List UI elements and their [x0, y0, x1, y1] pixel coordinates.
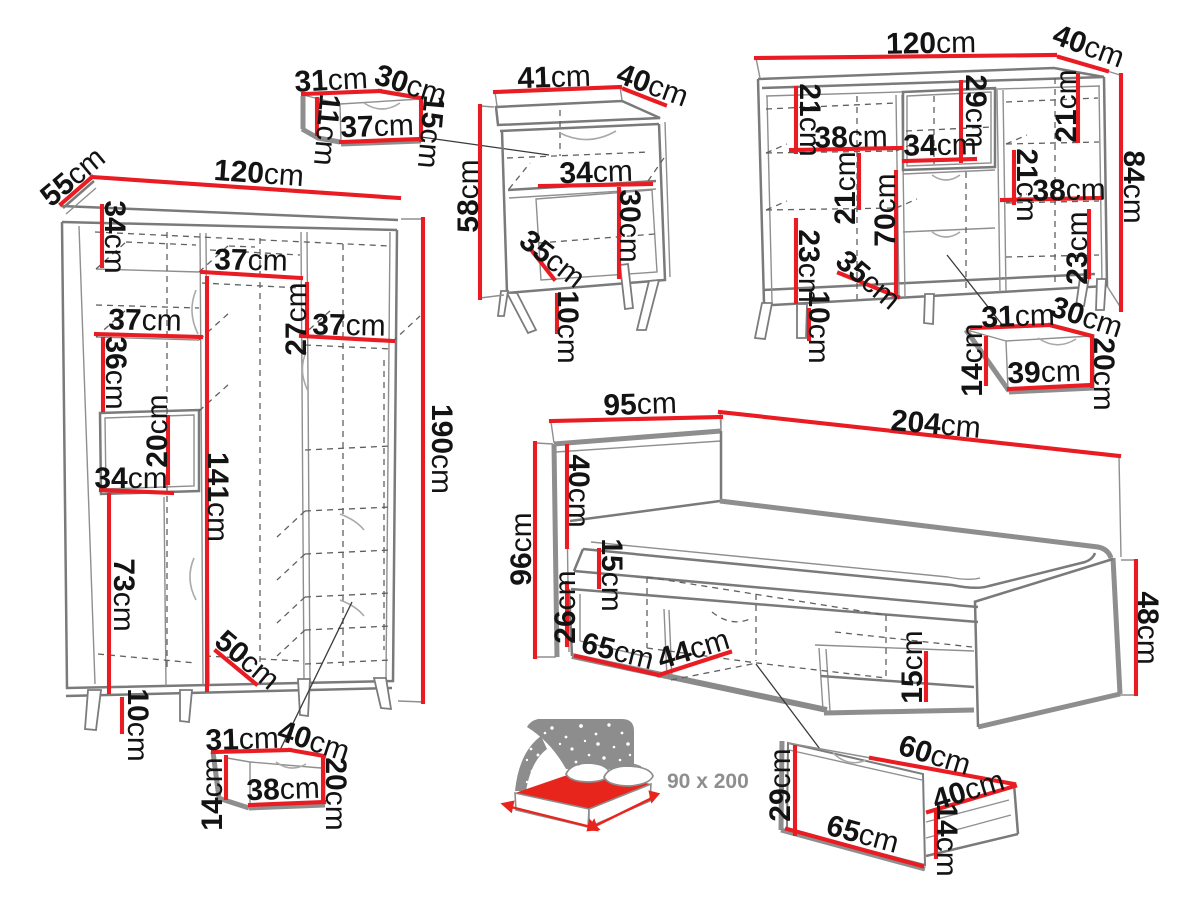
svg-text:37cm: 37cm: [108, 303, 182, 337]
svg-text:34cm: 34cm: [903, 128, 977, 162]
svg-text:34cm: 34cm: [94, 462, 167, 495]
svg-text:141cm: 141cm: [201, 452, 234, 542]
svg-text:37cm: 37cm: [214, 243, 288, 277]
svg-text:96cm: 96cm: [505, 512, 538, 585]
svg-text:37cm: 37cm: [340, 109, 414, 145]
svg-text:36cm: 36cm: [99, 336, 132, 409]
svg-text:90 x 200: 90 x 200: [667, 770, 749, 793]
svg-text:10cm: 10cm: [802, 290, 835, 363]
svg-text:31cm: 31cm: [205, 722, 279, 758]
svg-text:34cm: 34cm: [98, 200, 131, 273]
svg-text:14cm: 14cm: [956, 323, 989, 396]
svg-text:14cm: 14cm: [196, 757, 229, 830]
svg-text:38cm: 38cm: [246, 772, 320, 808]
svg-text:34cm: 34cm: [559, 155, 633, 191]
svg-text:73cm: 73cm: [107, 558, 140, 631]
svg-text:84cm: 84cm: [1117, 150, 1150, 223]
svg-text:20cm: 20cm: [1087, 337, 1120, 410]
svg-text:21cm: 21cm: [1050, 69, 1083, 142]
svg-text:30cm: 30cm: [613, 189, 646, 262]
svg-text:14cm: 14cm: [930, 803, 963, 876]
svg-text:23cm: 23cm: [1061, 211, 1094, 284]
svg-text:120cm: 120cm: [886, 26, 977, 61]
svg-text:29cm: 29cm: [764, 748, 797, 821]
svg-text:190cm: 190cm: [425, 404, 458, 494]
svg-text:38cm: 38cm: [814, 120, 888, 154]
svg-text:40cm: 40cm: [562, 454, 595, 527]
svg-text:70cm: 70cm: [869, 173, 902, 246]
svg-text:58cm: 58cm: [452, 159, 485, 232]
svg-text:20cm: 20cm: [141, 394, 174, 467]
svg-text:10cm: 10cm: [121, 688, 154, 761]
svg-text:15cm: 15cm: [595, 538, 628, 611]
svg-text:31cm: 31cm: [981, 299, 1055, 335]
svg-text:15cm: 15cm: [411, 94, 450, 170]
svg-text:15cm: 15cm: [896, 630, 929, 703]
svg-text:21cm: 21cm: [829, 151, 862, 224]
svg-text:38cm: 38cm: [1032, 173, 1106, 207]
svg-text:120cm: 120cm: [213, 154, 305, 193]
svg-text:37cm: 37cm: [312, 308, 386, 342]
svg-text:26cm: 26cm: [549, 570, 582, 643]
svg-text:10cm: 10cm: [551, 290, 584, 363]
svg-text:39cm: 39cm: [1007, 355, 1081, 391]
svg-text:20cm: 20cm: [319, 757, 352, 830]
svg-text:48cm: 48cm: [1131, 591, 1164, 664]
svg-text:41cm: 41cm: [517, 60, 591, 96]
svg-text:95cm: 95cm: [603, 387, 677, 423]
svg-text:27cm: 27cm: [280, 282, 313, 355]
